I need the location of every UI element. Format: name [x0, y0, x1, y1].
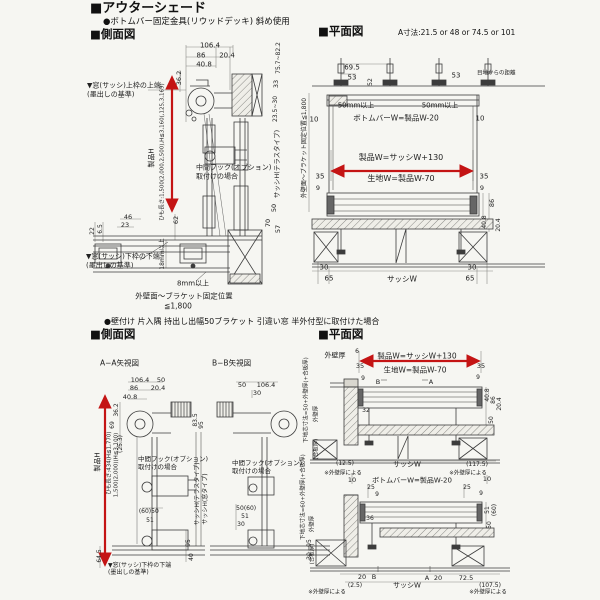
- page-title: ■アウターシェード: [90, 2, 206, 16]
- section2-heading: ●壁付け 片入隅 持出し出幅50ブラケット 引違い窓 半外付型に取付けた場合: [104, 318, 379, 327]
- section1-plan-view-heading: ■平面図: [318, 25, 363, 38]
- section2-plan-view-heading: ■平面図: [318, 328, 363, 341]
- section1-side-view-heading: ■側面図: [90, 28, 135, 41]
- a-dimension-note: A寸法:21.5 or 48 or 74.5 or 101: [398, 29, 515, 37]
- page-subtitle: ●ボトムバー固定金具(リウッドデッキ) 斜め使用: [103, 18, 290, 27]
- dimension-lines: [95, 45, 500, 582]
- plan-view-2: [310, 379, 510, 572]
- catalog-page: ■アウターシェード ●ボトムバー固定金具(リウッドデッキ) 斜め使用 ■側面図 …: [0, 0, 600, 600]
- section2-side-view-heading: ■側面図: [90, 328, 135, 341]
- drawing-linework: [0, 0, 600, 600]
- plan-view-1: [312, 58, 545, 267]
- side-view-1: [93, 74, 262, 284]
- side-view-aa-bb: [112, 402, 330, 555]
